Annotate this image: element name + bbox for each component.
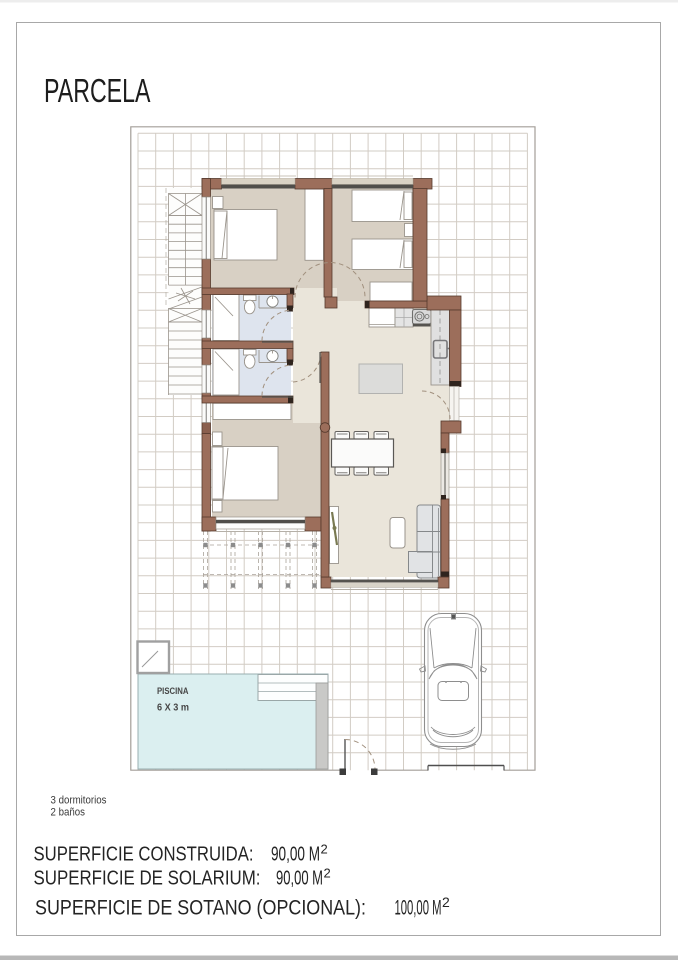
svg-text:PISCINA: PISCINA [157,686,189,697]
svg-text:SUPERFICIE DE SOTANO (OPCIONAL: SUPERFICIE DE SOTANO (OPCIONAL): [35,896,366,920]
svg-text:SUPERFICIE DE SOLARIUM:: SUPERFICIE DE SOLARIUM: [34,868,261,890]
svg-text:2: 2 [442,894,450,910]
svg-text:6 X 3 m: 6 X 3 m [157,703,189,714]
svg-text:SUPERFICIE CONSTRUIDA:: SUPERFICIE CONSTRUIDA: [34,844,254,866]
svg-text:2: 2 [324,866,331,881]
svg-text:3 dormitorios: 3 dormitorios [51,795,107,807]
svg-text:2: 2 [321,842,328,857]
svg-text:2 baños: 2 baños [51,807,86,819]
svg-text:90,00 M: 90,00 M [271,844,320,866]
svg-text:100,00 M: 100,00 M [395,896,442,920]
svg-text:90,00 M: 90,00 M [276,868,323,890]
svg-text:PARCELA: PARCELA [44,73,151,110]
